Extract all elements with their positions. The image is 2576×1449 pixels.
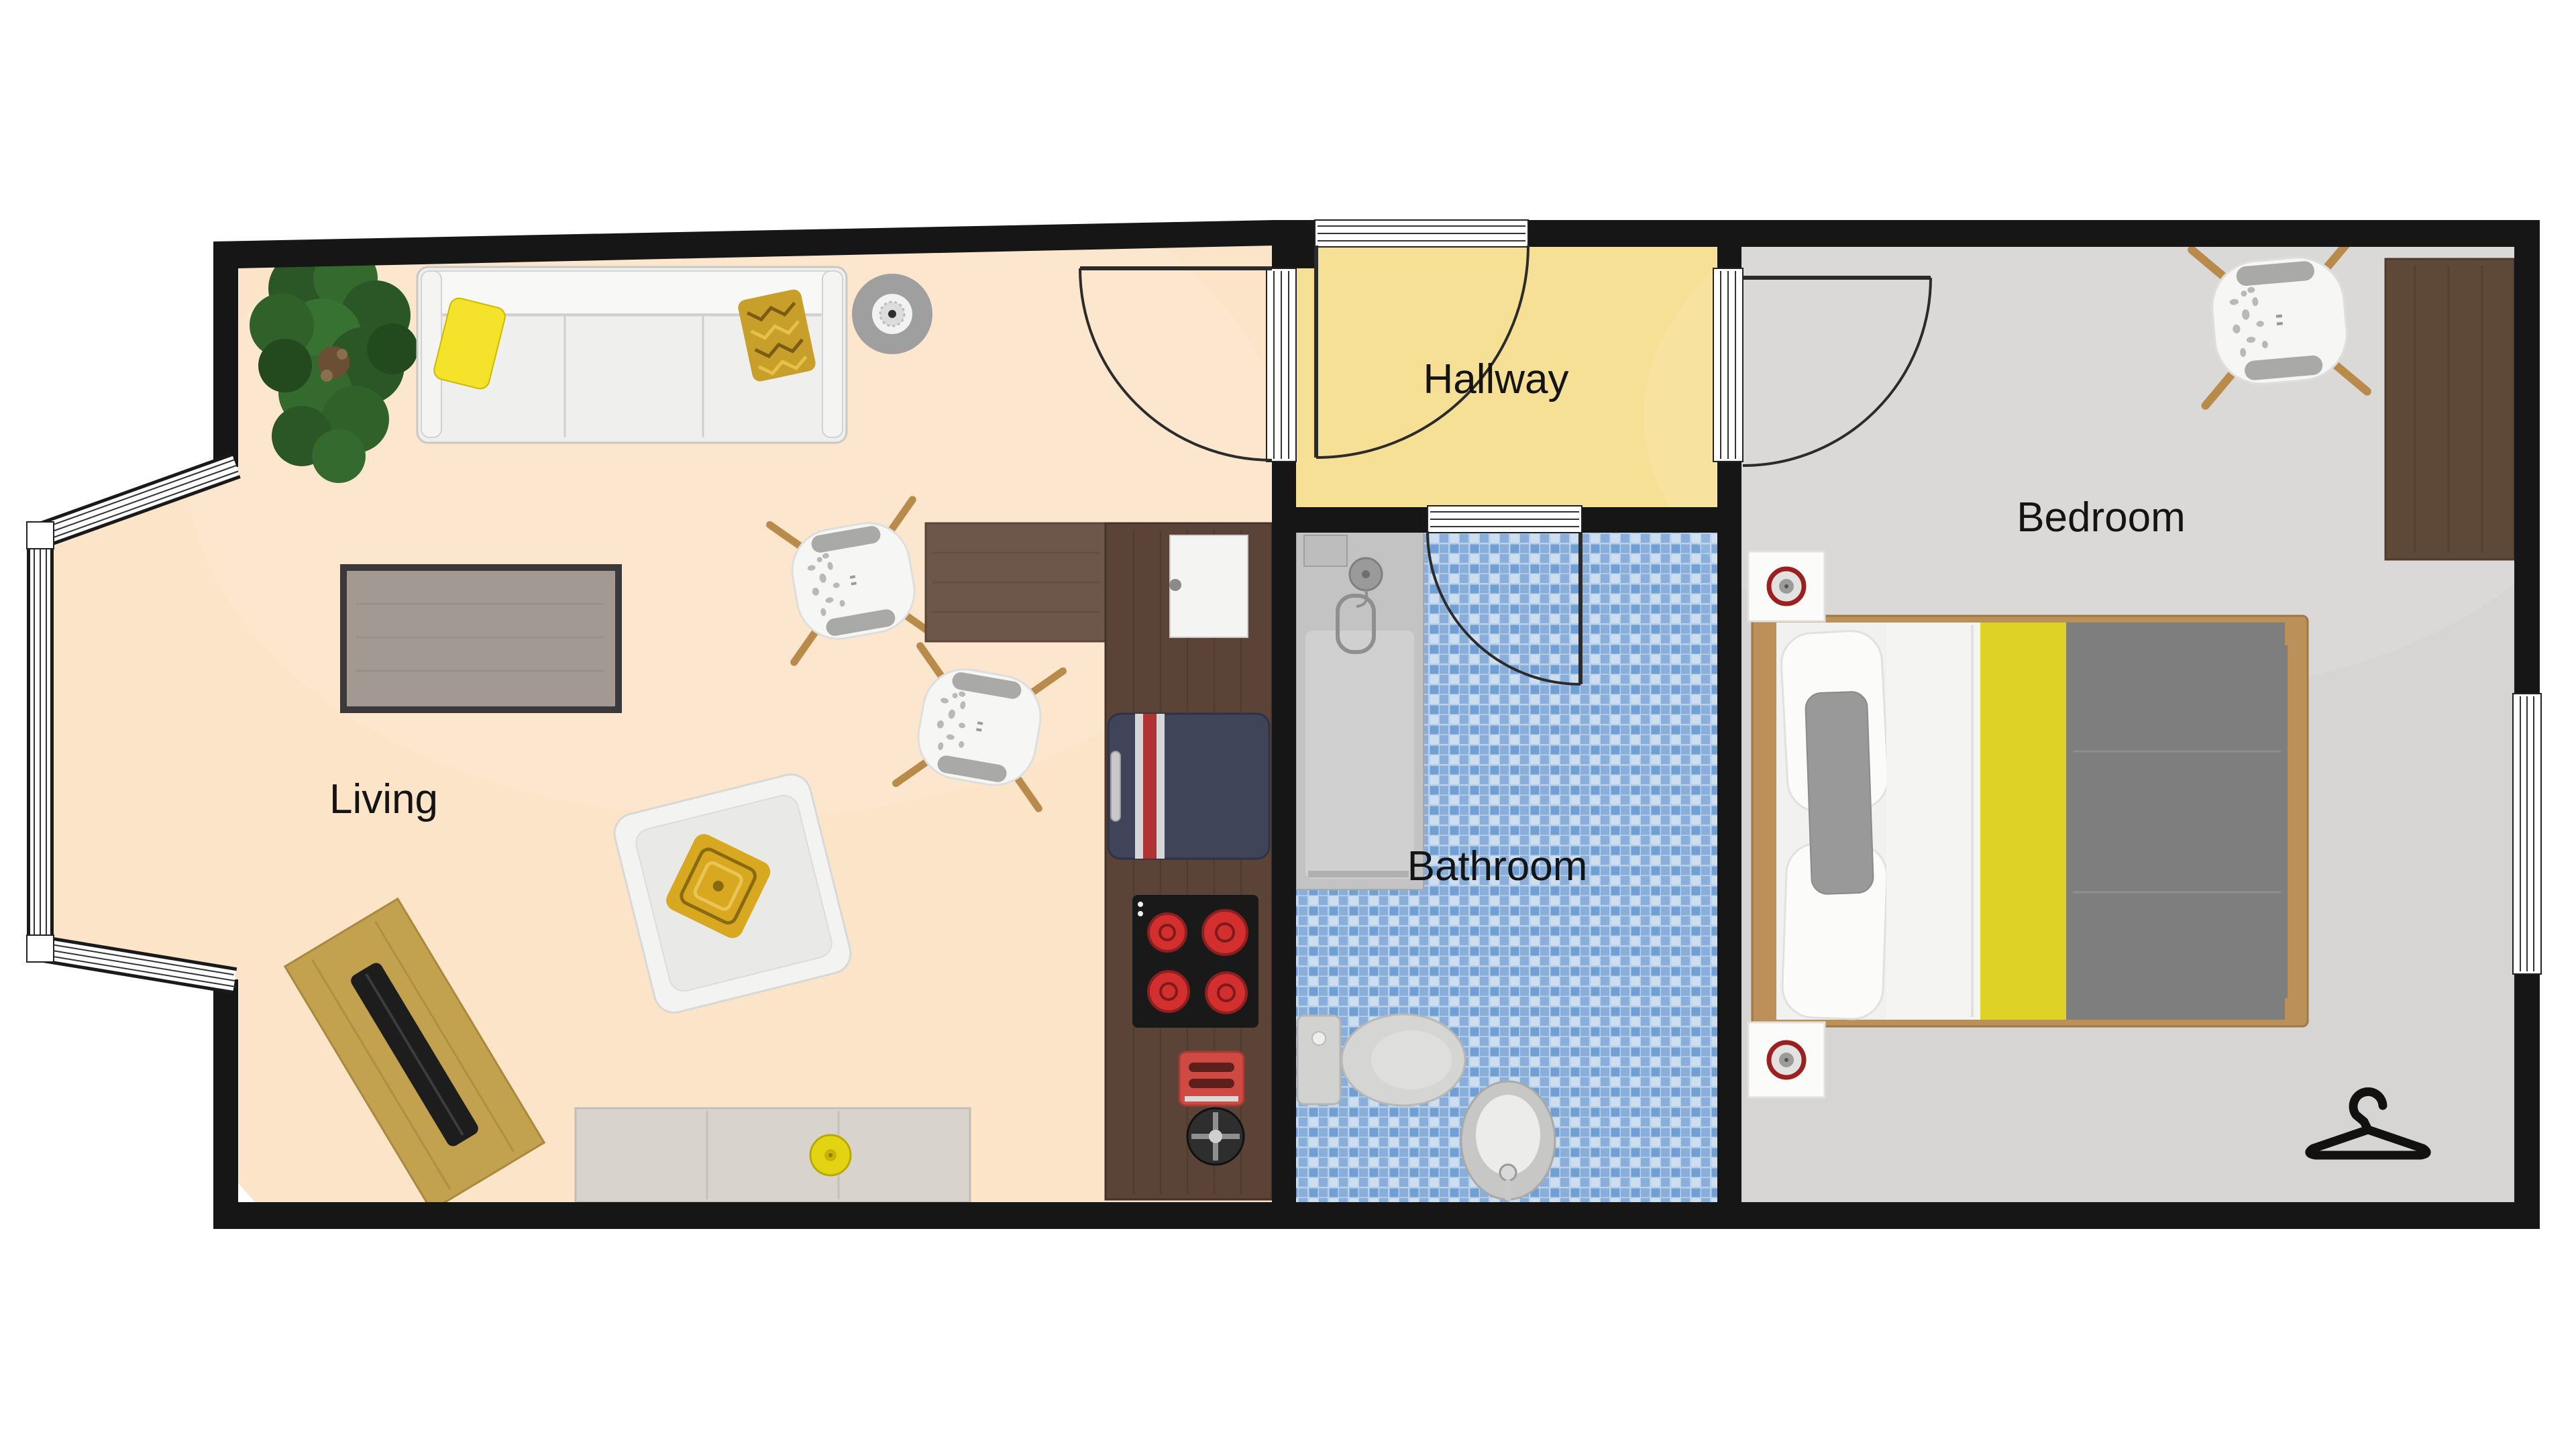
bedroom-desk xyxy=(2385,259,2514,559)
door-frame-bedroom xyxy=(1713,268,1743,462)
bathroom-sink xyxy=(1461,1081,1555,1201)
stove-burner xyxy=(1203,910,1247,955)
faucet xyxy=(1169,579,1181,591)
bed-pillow-gray xyxy=(1805,691,1874,894)
sideboard xyxy=(576,1108,970,1202)
bed xyxy=(1752,616,2308,1026)
coffee-table xyxy=(343,568,619,710)
floor-fan xyxy=(852,274,932,354)
room-label-living: Living xyxy=(329,776,438,822)
fridge xyxy=(1108,714,1269,859)
stove-burner xyxy=(1148,914,1186,951)
nightstand xyxy=(1748,1022,1825,1097)
stove-burner xyxy=(1148,971,1189,1012)
door-frame-bathroom xyxy=(1428,506,1582,533)
floor-plan-canvas: Living Hallway Bathroom Bedroom xyxy=(0,0,2576,1449)
kitchen-sink xyxy=(1170,535,1248,637)
shower xyxy=(1296,531,1424,890)
window-bedroom-right xyxy=(2513,694,2541,974)
bed-stripe xyxy=(1980,623,2066,1020)
grinder xyxy=(1187,1108,1244,1165)
floor-plan: Living Hallway Bathroom Bedroom xyxy=(0,0,2576,1449)
faucet xyxy=(1500,1165,1516,1181)
room-label-bedroom: Bedroom xyxy=(2017,494,2186,541)
toaster xyxy=(1179,1052,1244,1106)
glazed-door-living xyxy=(1267,268,1296,462)
sofa xyxy=(417,267,847,443)
stove xyxy=(1132,895,1258,1028)
nightstand xyxy=(1748,551,1825,621)
bed-duvet xyxy=(2066,623,2288,1020)
entry-door-frame xyxy=(1315,220,1528,247)
stove-burner xyxy=(1206,973,1246,1013)
room-label-bathroom: Bathroom xyxy=(1407,843,1588,890)
toilet xyxy=(1297,1014,1465,1106)
fridge-handle xyxy=(1111,751,1120,821)
room-label-hallway: Hallway xyxy=(1423,356,1568,402)
